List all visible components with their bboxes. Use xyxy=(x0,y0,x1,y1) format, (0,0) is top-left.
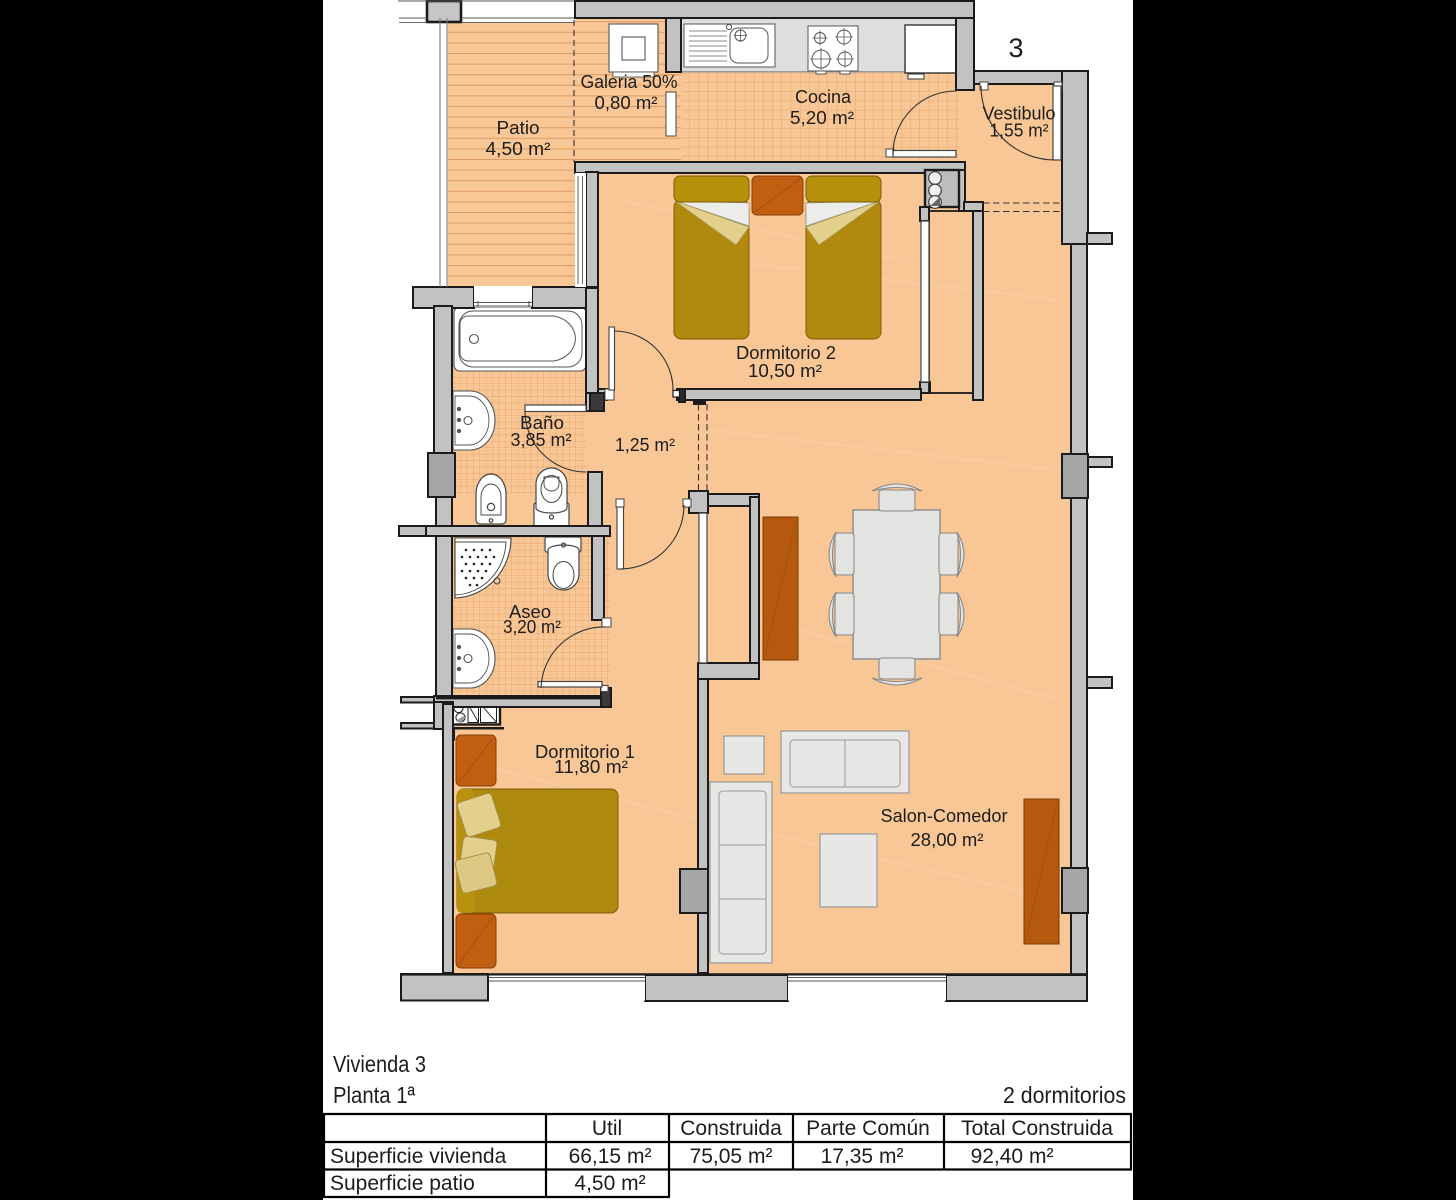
svg-text:4,50 m²: 4,50 m² xyxy=(486,139,551,159)
svg-text:2 dormitorios: 2 dormitorios xyxy=(1003,1082,1126,1108)
svg-text:5,20 m²: 5,20 m² xyxy=(790,108,854,128)
svg-text:11,80 m²: 11,80 m² xyxy=(554,757,628,777)
svg-text:1,55 m²: 1,55 m² xyxy=(990,121,1049,141)
svg-text:4,50 m²: 4,50 m² xyxy=(574,1172,645,1195)
svg-text:10,50 m²: 10,50 m² xyxy=(748,361,822,381)
svg-text:Salon-Comedor: Salon-Comedor xyxy=(881,806,1008,826)
svg-text:Total Construida: Total Construida xyxy=(961,1117,1113,1140)
svg-text:Util: Util xyxy=(592,1117,622,1140)
svg-text:92,40 m²: 92,40 m² xyxy=(971,1145,1054,1168)
svg-text:Dormitorio 2: Dormitorio 2 xyxy=(736,343,836,363)
svg-text:Superficie patio: Superficie patio xyxy=(330,1172,475,1195)
svg-text:Construida: Construida xyxy=(680,1117,782,1140)
svg-text:28,00 m²: 28,00 m² xyxy=(911,830,984,850)
svg-text:3,85 m²: 3,85 m² xyxy=(511,430,572,450)
svg-text:Patio: Patio xyxy=(497,118,540,138)
svg-text:75,05 m²: 75,05 m² xyxy=(690,1145,773,1168)
svg-text:Parte Común: Parte Común xyxy=(806,1117,930,1140)
svg-text:Superficie vivienda: Superficie vivienda xyxy=(330,1145,507,1168)
svg-text:3: 3 xyxy=(1008,33,1023,63)
svg-text:Cocina: Cocina xyxy=(795,87,852,107)
svg-text:66,15 m²: 66,15 m² xyxy=(569,1145,652,1168)
svg-text:3,20 m²: 3,20 m² xyxy=(503,617,561,637)
svg-text:Planta 1ª: Planta 1ª xyxy=(333,1082,415,1108)
svg-text:17,35 m²: 17,35 m² xyxy=(821,1145,904,1168)
svg-text:0,80 m²: 0,80 m² xyxy=(595,93,658,113)
svg-text:Galeria 50%: Galeria 50% xyxy=(581,72,678,92)
svg-text:Vivienda 3: Vivienda 3 xyxy=(333,1051,426,1077)
svg-text:1,25 m²: 1,25 m² xyxy=(615,435,675,455)
